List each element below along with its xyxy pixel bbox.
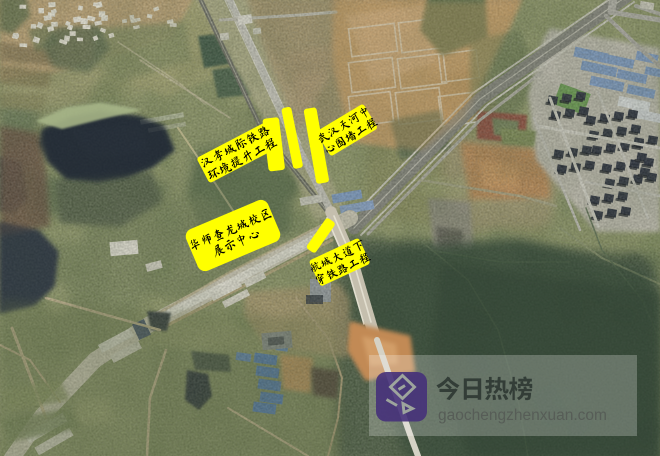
svg-text:gaochengzhenxuan.com: gaochengzhenxuan.com: [438, 407, 607, 424]
